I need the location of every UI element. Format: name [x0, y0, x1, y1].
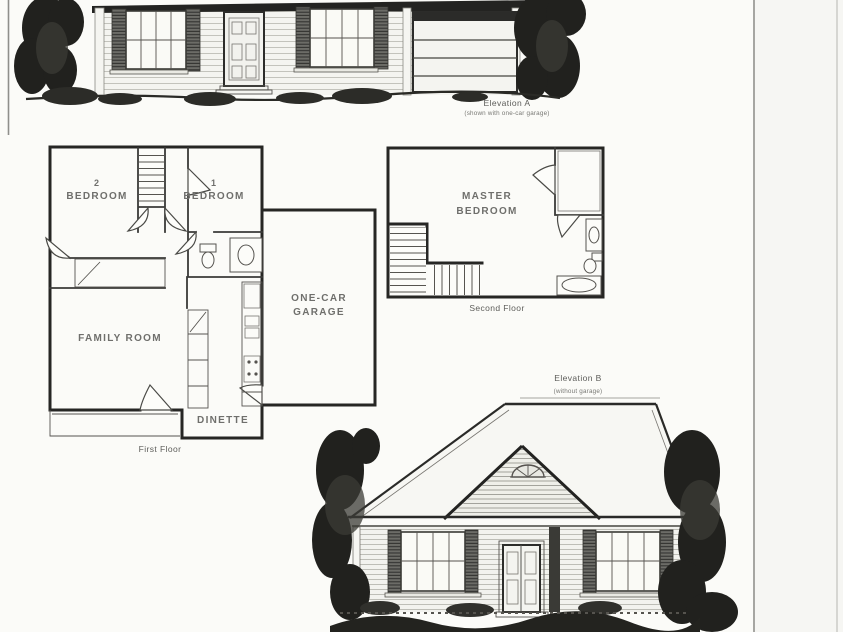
tree [14, 0, 84, 94]
room-label-bedroom2-number: 2 [94, 178, 100, 188]
front-door [496, 541, 548, 617]
window-with-shutters [110, 9, 200, 74]
elevation-a-subcaption: (shown with one-car garage) [464, 110, 549, 117]
bathroom-fixtures [200, 238, 262, 272]
corner-board [95, 8, 104, 95]
elevation-b-drawing: Elevation B (without garage) [312, 373, 738, 632]
door-swing [165, 208, 186, 231]
wing-corner-shadow [549, 527, 560, 612]
elevation-b-subcaption: (without garage) [554, 388, 603, 395]
elevation-a-drawing: Elevation A (shown with one-car garage) [14, 0, 586, 117]
porch-outline [50, 410, 180, 436]
second-floor-plan: MASTER BEDROOM Second Floor [388, 148, 603, 313]
room-label-garage-line2: GARAGE [293, 307, 345, 318]
door-swing [176, 232, 196, 254]
room-label-bedroom2: BEDROOM [66, 191, 127, 202]
door-swing [558, 215, 581, 237]
window-with-shutters [385, 530, 481, 597]
tree [312, 428, 380, 620]
door-swing [140, 385, 172, 410]
room-label-master-line1: MASTER [462, 191, 512, 202]
closet-shelving [558, 151, 600, 211]
staircase [428, 265, 481, 295]
first-floor-caption: First Floor [139, 444, 182, 454]
door-swing [533, 165, 555, 195]
second-floor-caption: Second Floor [469, 303, 524, 313]
room-label-bedroom1: BEDROOM [183, 191, 244, 202]
staircase [390, 227, 426, 295]
room-label-dinette: DINETTE [197, 415, 249, 426]
closet-bath-walls [555, 148, 603, 215]
corner-board [403, 8, 411, 95]
window-with-shutters [294, 7, 388, 72]
garage-door [413, 12, 517, 92]
staircase [75, 259, 165, 287]
tree [514, 0, 586, 100]
closet-shelving [139, 150, 164, 206]
room-label-bedroom1-number: 1 [211, 178, 217, 188]
room-label-garage-line1: ONE-CAR [291, 293, 347, 304]
blueprint-drawing: Elevation A (shown with one-car garage) [0, 0, 843, 632]
front-door [216, 12, 272, 94]
room-label-master-line2: BEDROOM [456, 206, 517, 217]
elevation-a-caption: Elevation A [484, 98, 531, 108]
room-label-family-room: FAMILY ROOM [78, 333, 162, 344]
scanned-floor-plan-page: Elevation A (shown with one-car garage) [0, 0, 843, 632]
elevation-b-caption: Elevation B [554, 373, 601, 383]
first-floor-plan: 2 BEDROOM 1 BEDROOM FAMILY ROOM DINETTE … [46, 147, 375, 454]
door-swing [240, 385, 262, 405]
